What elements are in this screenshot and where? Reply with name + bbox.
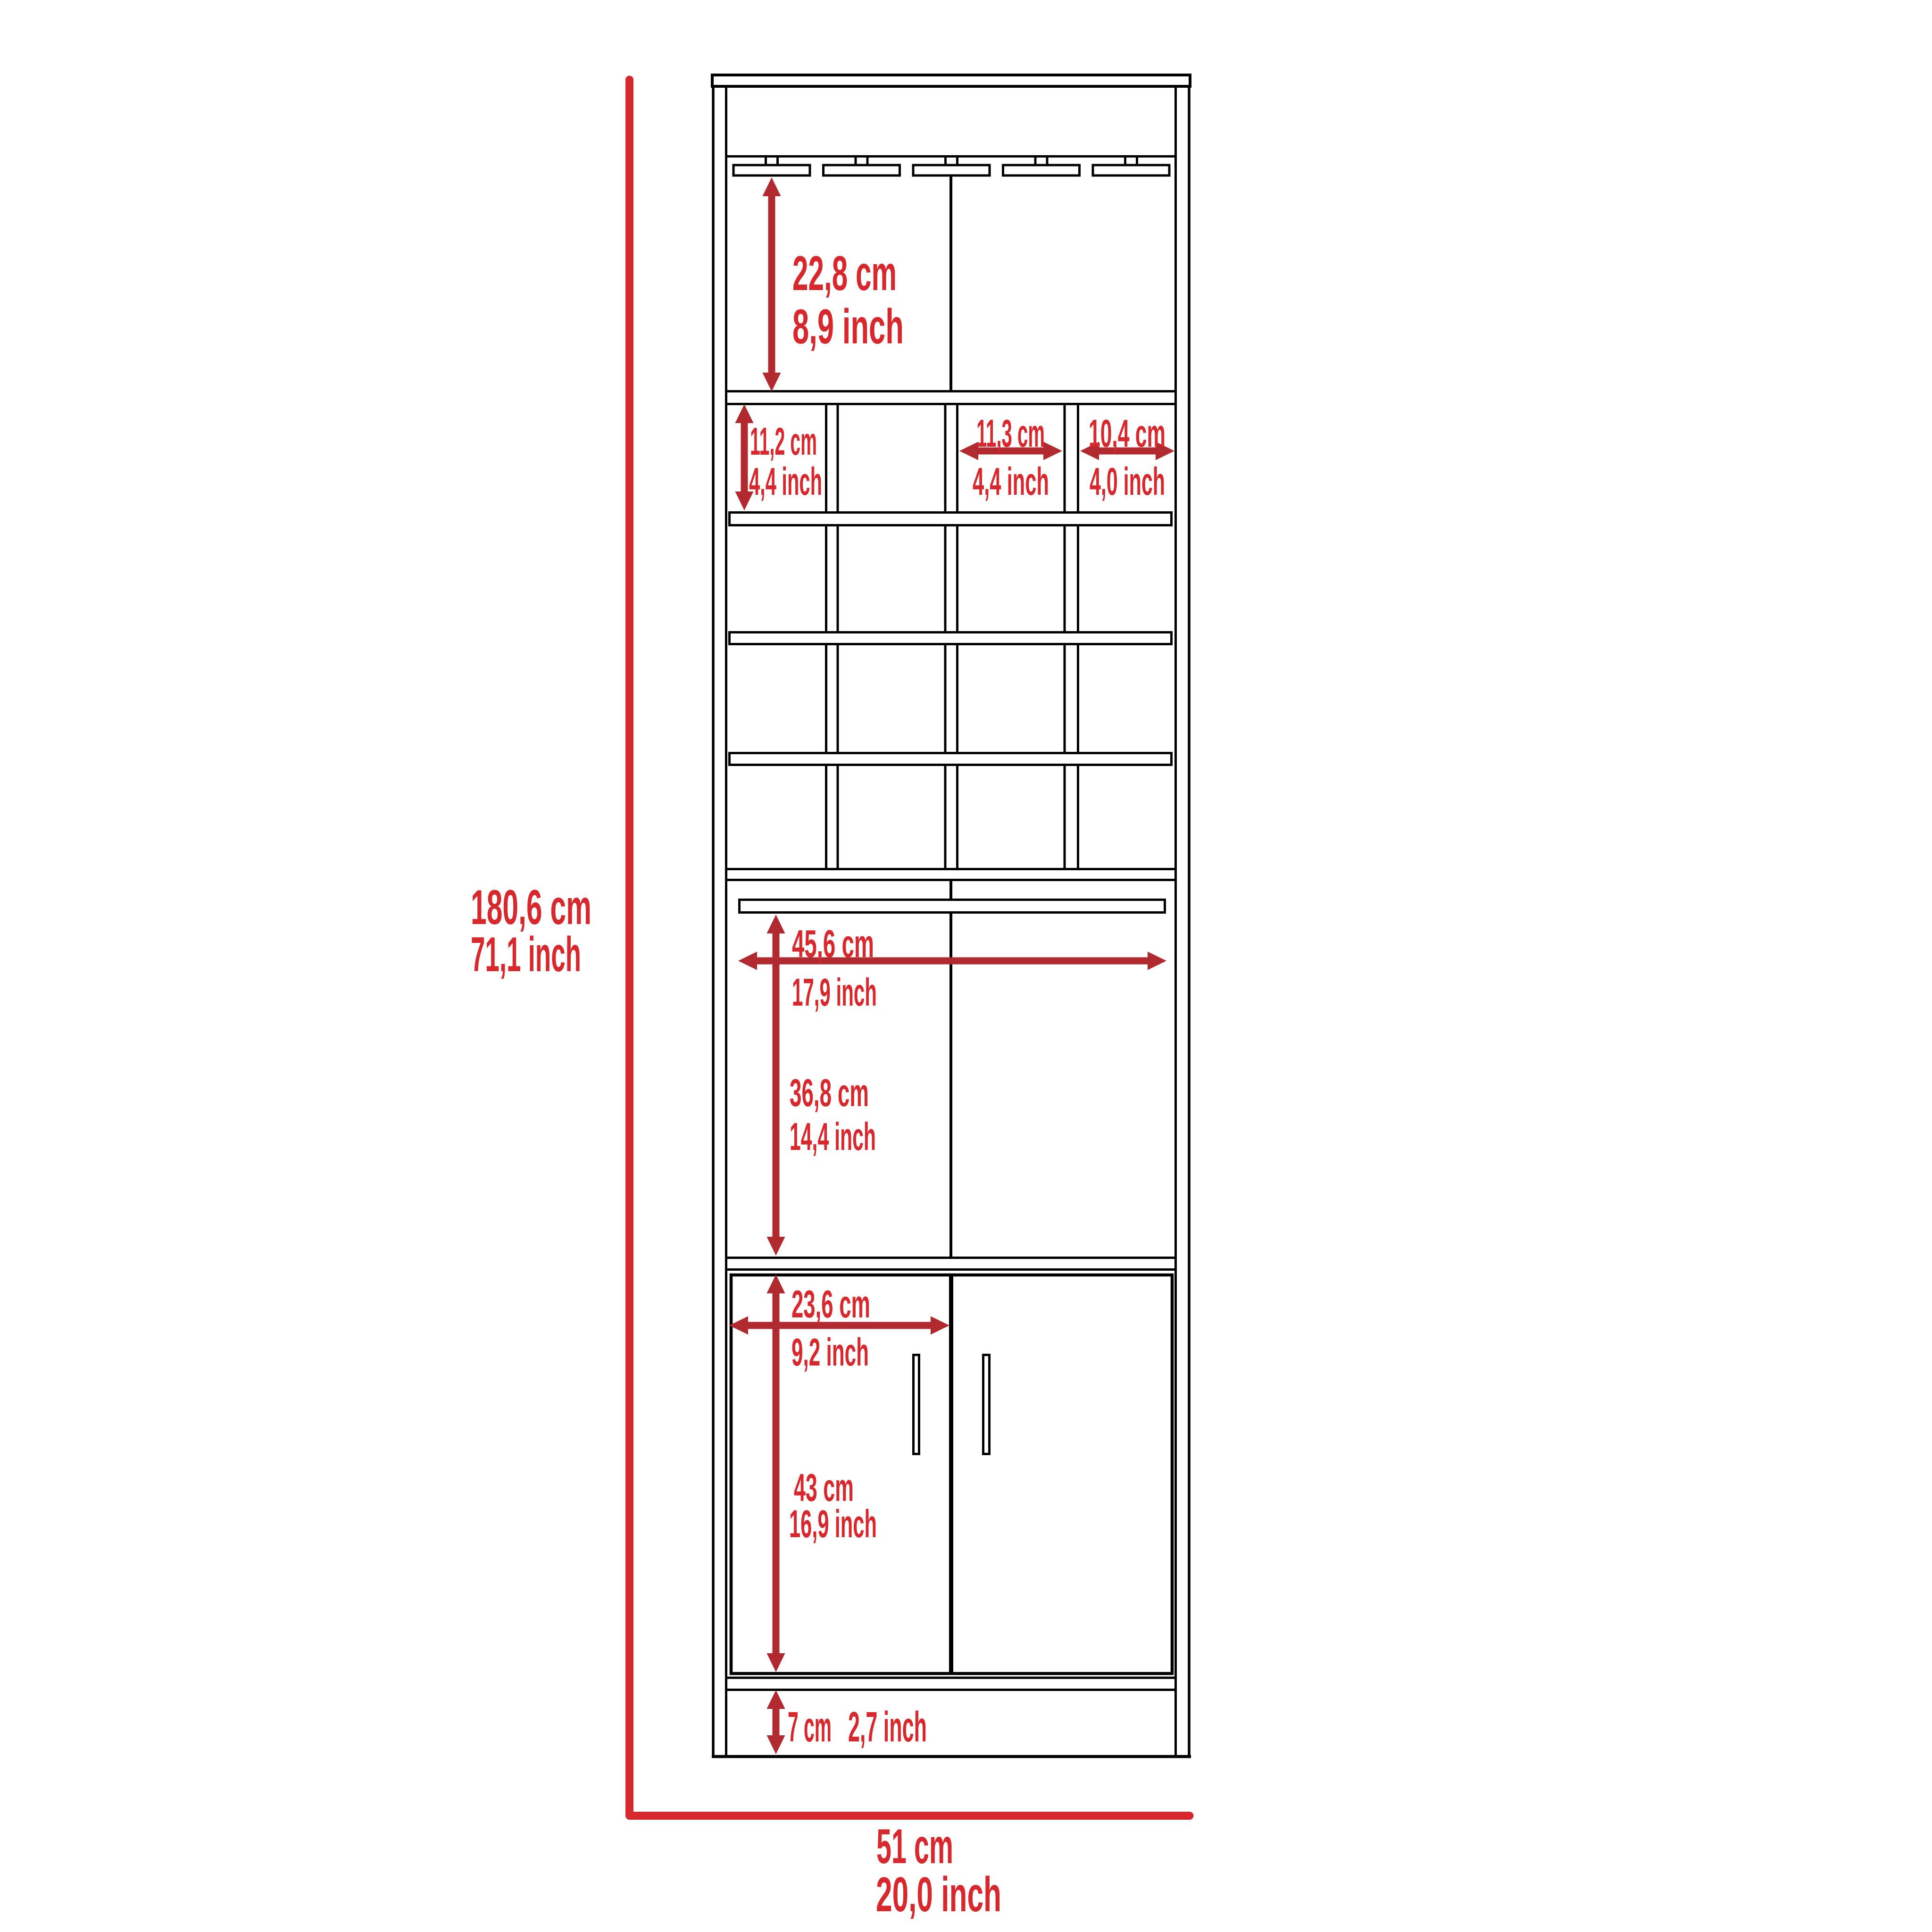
svg-text:20,0 inch: 20,0 inch [876,1867,1001,1922]
svg-text:11,3 cm: 11,3 cm [976,411,1045,455]
svg-text:180,6 cm: 180,6 cm [471,880,591,935]
svg-text:71,1 inch: 71,1 inch [471,927,581,982]
svg-text:22,8 cm: 22,8 cm [792,246,897,301]
svg-text:4,0 inch: 4,0 inch [1090,459,1165,503]
svg-text:14,4 inch: 14,4 inch [790,1115,876,1158]
svg-text:4,4 inch: 4,4 inch [749,459,822,503]
svg-text:51 cm: 51 cm [876,1819,953,1874]
svg-text:7 cm: 7 cm [788,1704,832,1751]
svg-text:4,4 inch: 4,4 inch [973,459,1049,503]
svg-text:17,9 inch: 17,9 inch [792,970,877,1014]
svg-text:2,7 inch: 2,7 inch [848,1704,927,1751]
svg-text:36,8 cm: 36,8 cm [790,1071,869,1115]
svg-text:16,9 inch: 16,9 inch [789,1502,877,1546]
svg-text:8,9 inch: 8,9 inch [792,300,904,354]
svg-text:10,4 cm: 10,4 cm [1089,411,1166,455]
svg-text:9,2 inch: 9,2 inch [791,1330,869,1374]
svg-text:23,6 cm: 23,6 cm [791,1282,870,1326]
svg-text:45,6 cm: 45,6 cm [792,922,874,966]
svg-text:11,2 cm: 11,2 cm [750,419,817,463]
